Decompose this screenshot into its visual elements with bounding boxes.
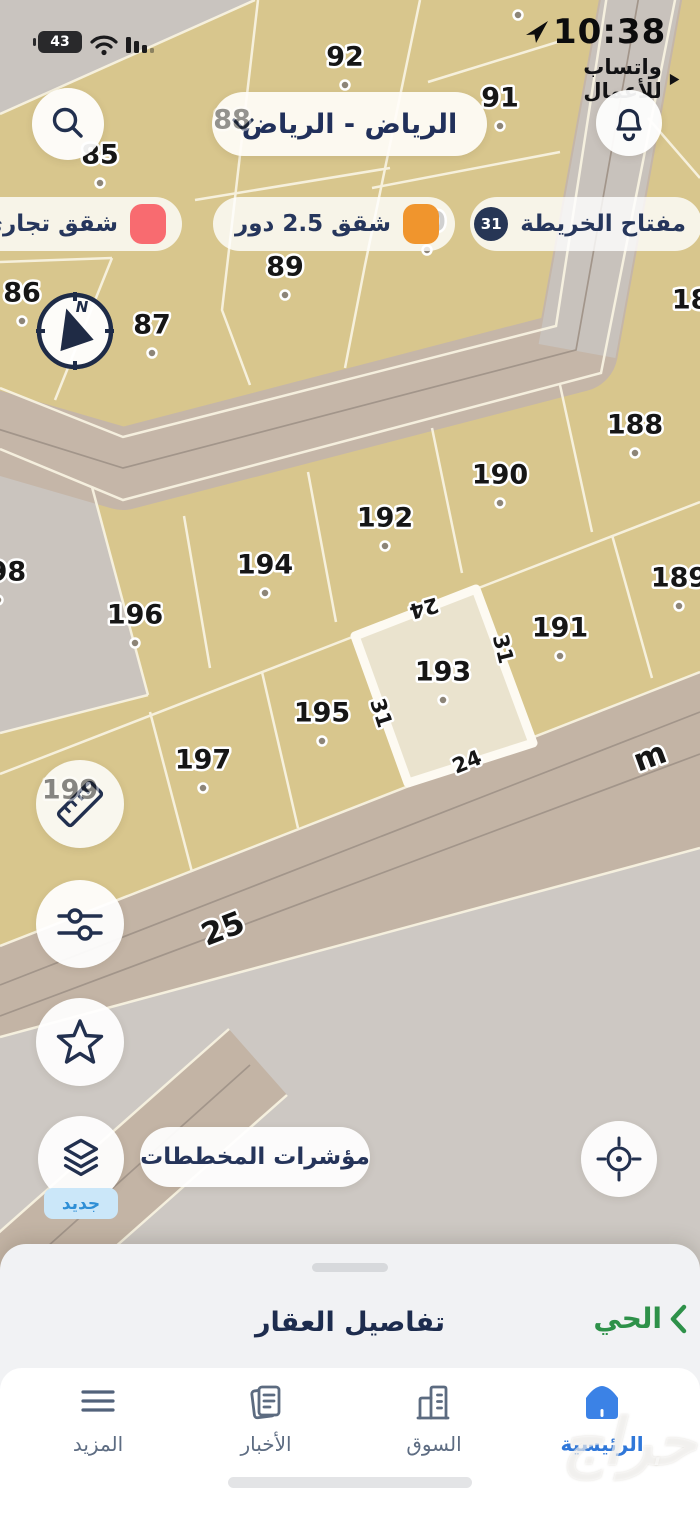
parcel-label: 189 [651, 563, 700, 594]
parcel-dot [381, 542, 390, 551]
parcel-label: 87 [133, 310, 171, 341]
parcel-label: 92 [326, 42, 364, 73]
location-arrow-icon [525, 20, 549, 44]
sheet-drag-handle[interactable] [312, 1263, 388, 1272]
star-icon [55, 1018, 105, 1066]
parcel-label: 196 [107, 600, 163, 631]
parcel-label: 198 [0, 557, 26, 588]
layers-icon [58, 1137, 104, 1181]
parcel-label: 193 [415, 657, 471, 688]
district-link-label: الحي [593, 1302, 662, 1335]
parcel-dot [18, 317, 27, 326]
nav-item-market[interactable]: السوق [359, 1368, 509, 1514]
map-key-count-badge: 31 [474, 207, 508, 241]
compass-north-label: N [76, 298, 89, 316]
crosshair-icon [596, 1136, 642, 1182]
chevron-down-icon [232, 118, 254, 132]
legend-label: شقق 2.5 دور [235, 211, 391, 237]
wifi-icon [90, 33, 118, 57]
parcel-label: 89 [266, 252, 304, 283]
nav-label: السوق [406, 1432, 461, 1456]
news-icon [243, 1380, 289, 1424]
district-link[interactable]: الحي [593, 1302, 688, 1335]
parcel-dot [496, 122, 505, 131]
parcel-dot [281, 291, 290, 300]
legend-swatch-red [130, 204, 166, 244]
play-icon [669, 72, 680, 87]
nav-label: الأخبار [240, 1432, 291, 1456]
active-app-label: واتساب للأعمال [520, 55, 680, 103]
city-selector-label: الرياض - الرياض [242, 109, 458, 140]
compass[interactable]: N [35, 291, 115, 371]
parcel-dot [318, 737, 327, 746]
nav-item-more[interactable]: المزيد [23, 1368, 173, 1514]
search-icon [49, 105, 87, 143]
parcel-label: 197 [175, 745, 231, 776]
parcel-label: 185 [672, 285, 700, 316]
chevron-left-icon [668, 1304, 688, 1334]
parcel-label: 91 [481, 83, 519, 114]
parcel-label: 194 [237, 550, 293, 581]
parcel-dot [556, 652, 565, 661]
filters-button[interactable] [36, 880, 124, 968]
parcel-dot [0, 596, 3, 605]
cellular-signal-icon [126, 33, 162, 55]
measure-button[interactable] [36, 760, 124, 848]
parcel-dot [199, 784, 208, 793]
new-badge: جديد [44, 1188, 118, 1219]
parcel-dot [439, 696, 448, 705]
bell-icon [610, 103, 648, 143]
parcel-dot [261, 589, 270, 598]
search-button[interactable] [32, 88, 104, 160]
clock: 10:38 [553, 12, 666, 52]
parcel-label: 195 [294, 698, 350, 729]
parcel-label: 192 [357, 503, 413, 534]
notifications-button[interactable] [596, 90, 662, 156]
parcel-dot [131, 639, 140, 648]
parcel-dot [341, 81, 350, 90]
map-key-title: مفتاح الخريطة [520, 211, 686, 237]
plan-indicators-label: مؤشرات المخططات [140, 1144, 370, 1170]
menu-icon [75, 1380, 121, 1424]
legend-swatch-orange [403, 204, 439, 244]
watermark: حراج [562, 1406, 696, 1480]
nav-label: المزيد [73, 1432, 123, 1456]
parcel-label: 191 [532, 613, 588, 644]
home-indicator[interactable] [228, 1477, 472, 1488]
buildings-icon [411, 1380, 457, 1424]
locate-me-button[interactable] [581, 1121, 657, 1197]
parcel-label: 188 [607, 410, 663, 441]
parcel-dot [675, 602, 684, 611]
battery-indicator: 43 [38, 31, 82, 53]
parcel-dot [496, 499, 505, 508]
legend-label: شقق تجاري [0, 211, 118, 237]
nav-item-news[interactable]: الأخبار [191, 1368, 341, 1514]
sliders-icon [56, 904, 104, 944]
parcel-dot [514, 11, 523, 20]
parcel-dot [96, 179, 105, 188]
plan-indicators-button[interactable]: مؤشرات المخططات [140, 1127, 370, 1187]
parcel-label: 93 [499, 0, 537, 3]
map-key-pill[interactable]: مفتاح الخريطة 31 [470, 197, 700, 251]
city-selector[interactable]: الرياض - الرياض [212, 92, 487, 156]
parcel-label: 190 [472, 460, 528, 491]
ruler-icon [52, 776, 108, 832]
parcel-dot [148, 349, 157, 358]
favorites-button[interactable] [36, 998, 124, 1086]
parcel-dot [631, 449, 640, 458]
legend-chip-commercial[interactable]: شقق تجاري [0, 197, 182, 251]
app-screen: 8586878990919293185188189190191192193194… [0, 0, 700, 1514]
legend-chip-apartments[interactable]: شقق 2.5 دور [213, 197, 455, 251]
